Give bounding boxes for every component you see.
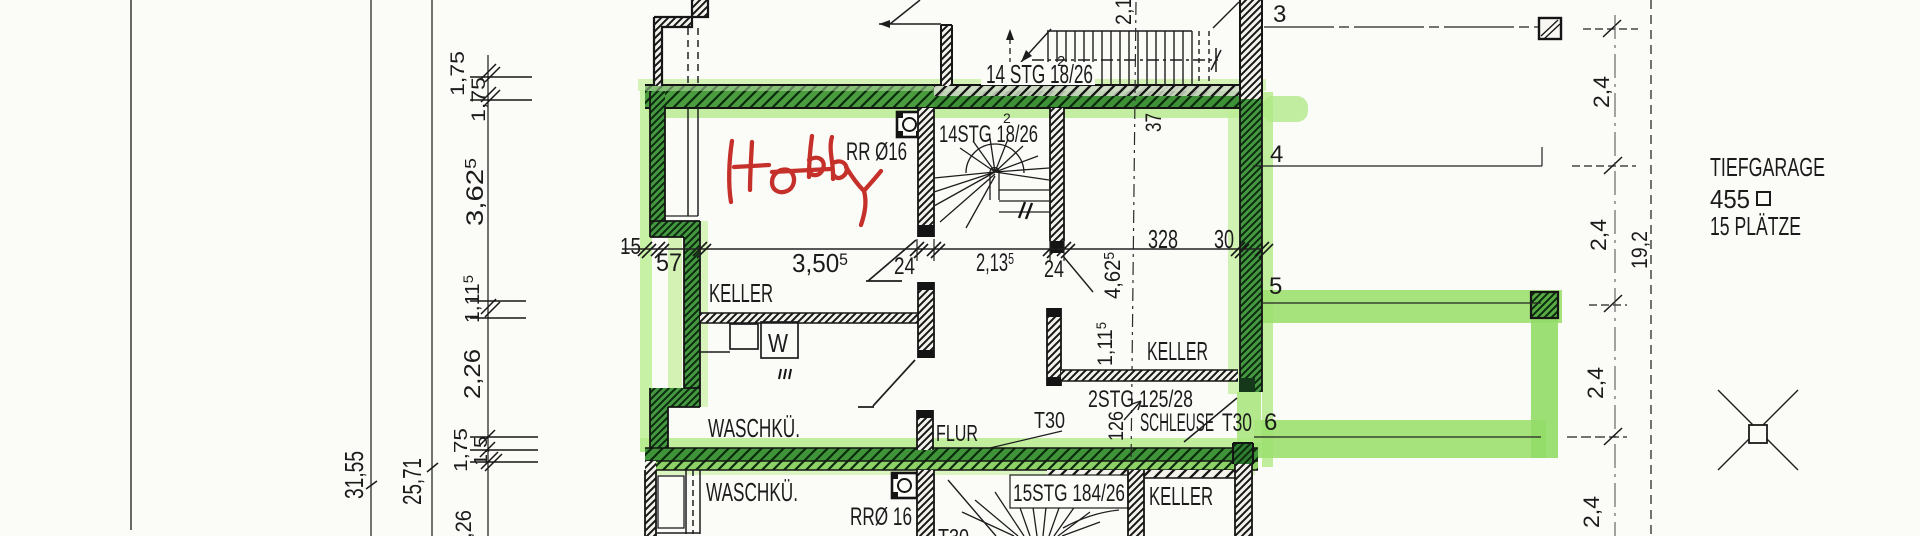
- svg-text:2,26: 2,26: [459, 349, 485, 399]
- svg-text:FLUR: FLUR: [936, 420, 978, 446]
- svg-text:1,5: 1,5: [471, 436, 491, 466]
- svg-text:RR Ø16: RR Ø16: [846, 138, 907, 166]
- svg-text:2,4: 2,4: [1586, 219, 1611, 251]
- svg-text:2: 2: [1057, 53, 1065, 70]
- svg-text:KELLER: KELLER: [709, 278, 773, 308]
- svg-text:WASCHKÜ.: WASCHKÜ.: [708, 413, 800, 443]
- svg-text:KELLER: KELLER: [1149, 481, 1213, 511]
- svg-text:3: 3: [1273, 1, 1286, 28]
- svg-text:328: 328: [1148, 224, 1178, 254]
- svg-text:15 PLÄTZE: 15 PLÄTZE: [1710, 211, 1801, 241]
- svg-text:T30: T30: [1034, 407, 1065, 433]
- svg-text:1,75: 1,75: [451, 428, 471, 472]
- svg-text:31,55: 31,55: [339, 451, 369, 499]
- svg-text:25,71: 25,71: [397, 458, 427, 505]
- svg-text:T30: T30: [1222, 409, 1252, 437]
- svg-text:W: W: [768, 328, 788, 358]
- svg-text:4: 4: [1270, 141, 1283, 168]
- svg-text:WASCHKÜ.: WASCHKÜ.: [706, 477, 798, 507]
- svg-text:2,4: 2,4: [1579, 496, 1604, 528]
- svg-text:14 STG 18/26: 14 STG 18/26: [986, 59, 1093, 89]
- svg-text:19,2: 19,2: [1627, 231, 1652, 269]
- svg-text:SCHLEUSE: SCHLEUSE: [1140, 409, 1214, 437]
- svg-text:6: 6: [1264, 409, 1277, 436]
- svg-text:T30: T30: [938, 524, 969, 536]
- svg-text:57: 57: [656, 249, 682, 277]
- svg-text:15STG 184/26: 15STG 184/26: [1013, 480, 1125, 507]
- svg-text:30: 30: [1214, 224, 1234, 254]
- svg-text:,26: ,26: [451, 510, 476, 536]
- svg-text:5: 5: [1269, 273, 1282, 300]
- svg-text:2,4: 2,4: [1589, 76, 1614, 108]
- svg-text:24: 24: [1044, 256, 1064, 283]
- svg-text:126: 126: [1105, 411, 1128, 441]
- svg-text:455: 455: [1710, 184, 1750, 214]
- svg-text:KELLER: KELLER: [1147, 336, 1208, 366]
- svg-text:1,75: 1,75: [448, 51, 469, 96]
- svg-text:37: 37: [1141, 113, 1166, 132]
- svg-text:2: 2: [1003, 110, 1011, 126]
- svg-text:14STG 18/26: 14STG 18/26: [939, 121, 1038, 148]
- svg-text:1,75: 1,75: [469, 77, 490, 122]
- svg-text:TIEFGARAGE: TIEFGARAGE: [1710, 152, 1825, 182]
- svg-text:15: 15: [620, 233, 641, 259]
- svg-text:2,4: 2,4: [1583, 367, 1608, 399]
- svg-text:RRØ 16: RRØ 16: [850, 503, 912, 531]
- svg-text:2,135: 2,135: [1111, 0, 1136, 25]
